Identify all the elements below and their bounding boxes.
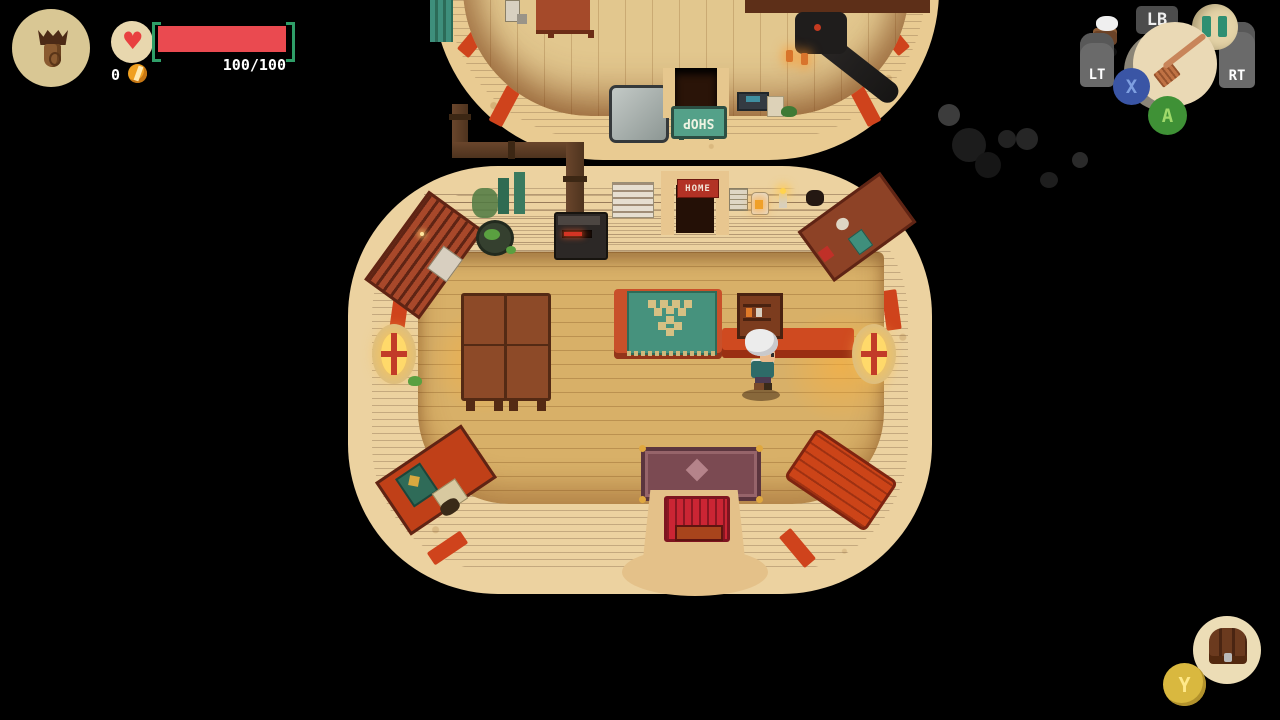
shop-wall-switch	[517, 14, 527, 24]
telescope-light	[814, 24, 821, 31]
health-bar	[158, 26, 286, 52]
smoke-puff	[1072, 152, 1088, 168]
shelf-lamp	[420, 232, 424, 236]
blanket-ornament	[648, 300, 656, 308]
pipe-joint	[449, 114, 471, 120]
entrance-bench	[664, 496, 730, 542]
blanket-fringe	[627, 351, 717, 356]
y-label: Y	[1178, 673, 1190, 697]
companion-hair	[1096, 16, 1118, 31]
lt-button[interactable]: LT	[1080, 33, 1114, 87]
player-shadow	[742, 389, 780, 401]
broom-icon	[1154, 40, 1208, 94]
shop-desk-legs	[548, 30, 594, 38]
candle	[801, 53, 808, 65]
coin-icon	[128, 64, 147, 83]
home-sign-label: HOME	[685, 184, 711, 194]
shop-sign-label: SHOP	[683, 115, 714, 130]
smoke-puff	[975, 152, 1001, 178]
shop-desk	[536, 0, 590, 34]
wardrobe-right[interactable]	[504, 293, 551, 401]
smoke-puff	[1016, 128, 1038, 150]
round-window-right	[852, 324, 896, 384]
potion-bars-icon	[1218, 16, 1227, 37]
lantern	[751, 192, 769, 215]
rt-label: RT	[1229, 68, 1246, 84]
lt-label: LT	[1089, 67, 1106, 83]
wardrobe-left[interactable]	[461, 293, 508, 401]
wall-note	[729, 188, 748, 211]
pendant-icon-loop	[49, 52, 61, 66]
x-button[interactable]: X	[1113, 68, 1150, 105]
hanging-plant	[514, 172, 525, 214]
home-doorpost	[661, 171, 674, 235]
a-button[interactable]: A	[1148, 96, 1187, 135]
pipe-joint	[508, 141, 515, 159]
stove	[554, 212, 608, 260]
window-plant	[408, 376, 422, 386]
candle-sconce	[779, 193, 787, 208]
stove-pipe	[452, 142, 584, 158]
health-value: 100/100	[166, 56, 286, 74]
heart-icon: ♥	[122, 32, 142, 50]
smoke-puff	[938, 104, 960, 126]
bed-blanket	[627, 291, 717, 355]
floor-plant	[781, 106, 797, 117]
satchel-icon	[1209, 628, 1247, 664]
hanging-plant	[498, 178, 509, 214]
smoke-puff	[1040, 172, 1058, 188]
leaf	[506, 246, 516, 254]
shop-green-shutter	[430, 0, 453, 42]
coin-count: 0	[96, 66, 120, 84]
shop-metal-table	[609, 85, 669, 143]
pipe-joint	[563, 176, 587, 182]
player-character[interactable]	[745, 329, 778, 356]
healthbar-bracket-right	[286, 22, 295, 62]
a-label: A	[1162, 105, 1173, 127]
round-window-left	[372, 324, 416, 384]
telescope-body	[795, 12, 847, 54]
wall-calendar	[612, 182, 654, 218]
shop-sign: SHOP	[671, 106, 727, 139]
y-button[interactable]: Y	[1163, 663, 1206, 706]
wall-moss	[472, 188, 498, 218]
home-sign: HOME	[677, 179, 719, 198]
entrance-porch	[622, 548, 768, 596]
game-viewport[interactable]: SHOP HOME	[0, 0, 1280, 720]
candle	[786, 50, 793, 62]
wall-pot	[806, 190, 824, 206]
banner-emblem	[408, 475, 420, 487]
player-boots	[754, 383, 772, 390]
smoke-puff	[998, 130, 1016, 148]
floor-tray	[737, 92, 769, 111]
x-label: X	[1126, 76, 1137, 98]
